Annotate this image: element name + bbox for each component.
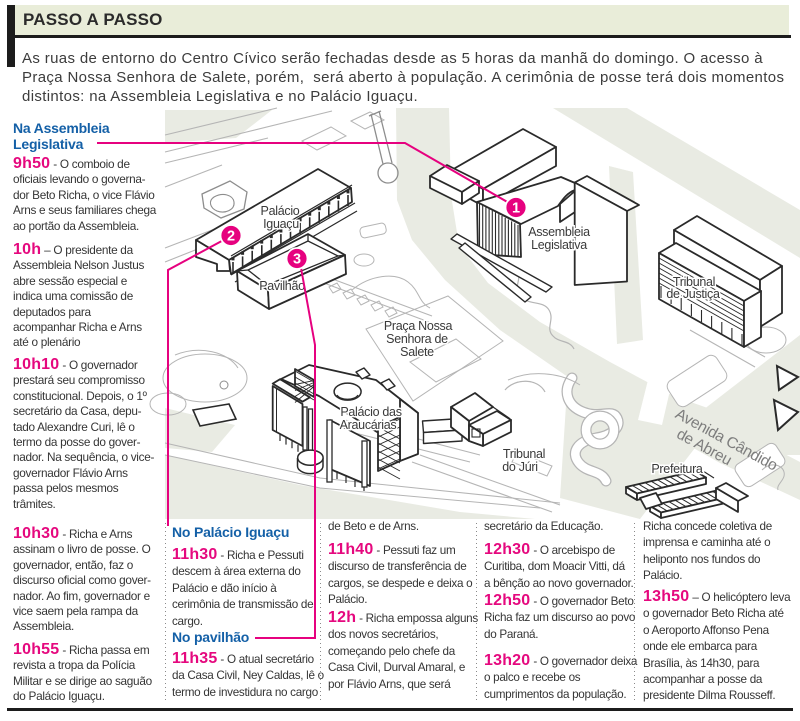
svg-text:Palácio das: Palácio das bbox=[340, 405, 401, 419]
svg-text:Araucárias: Araucárias bbox=[340, 418, 397, 432]
svg-text:Iguaçu: Iguaçu bbox=[263, 217, 299, 231]
svg-text:3: 3 bbox=[293, 252, 301, 268]
svg-text:Pavilhão: Pavilhão bbox=[259, 279, 305, 293]
svg-text:2: 2 bbox=[227, 229, 235, 245]
svg-text:Tribunal: Tribunal bbox=[503, 447, 545, 461]
svg-text:Prefeitura: Prefeitura bbox=[651, 462, 703, 476]
svg-text:Senhora de: Senhora de bbox=[386, 332, 448, 346]
svg-text:1: 1 bbox=[512, 201, 520, 217]
svg-text:do Júri: do Júri bbox=[502, 460, 537, 474]
svg-text:Palácio: Palácio bbox=[261, 204, 300, 218]
svg-text:Salete: Salete bbox=[400, 345, 434, 359]
svg-text:Assembleia: Assembleia bbox=[528, 225, 590, 239]
svg-text:Praça Nossa: Praça Nossa bbox=[384, 319, 453, 333]
svg-text:de Justiça: de Justiça bbox=[666, 287, 720, 301]
svg-text:Legislativa: Legislativa bbox=[531, 238, 587, 252]
